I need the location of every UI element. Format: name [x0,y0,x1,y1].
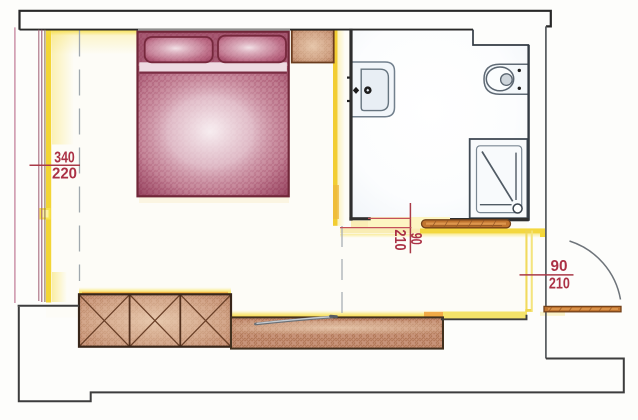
svg-text:90: 90 [407,233,424,245]
svg-text:90: 90 [551,258,568,275]
svg-text:210: 210 [549,276,570,293]
svg-text:340: 340 [54,150,75,167]
svg-text:210: 210 [391,230,408,251]
svg-text:220: 220 [52,165,77,182]
